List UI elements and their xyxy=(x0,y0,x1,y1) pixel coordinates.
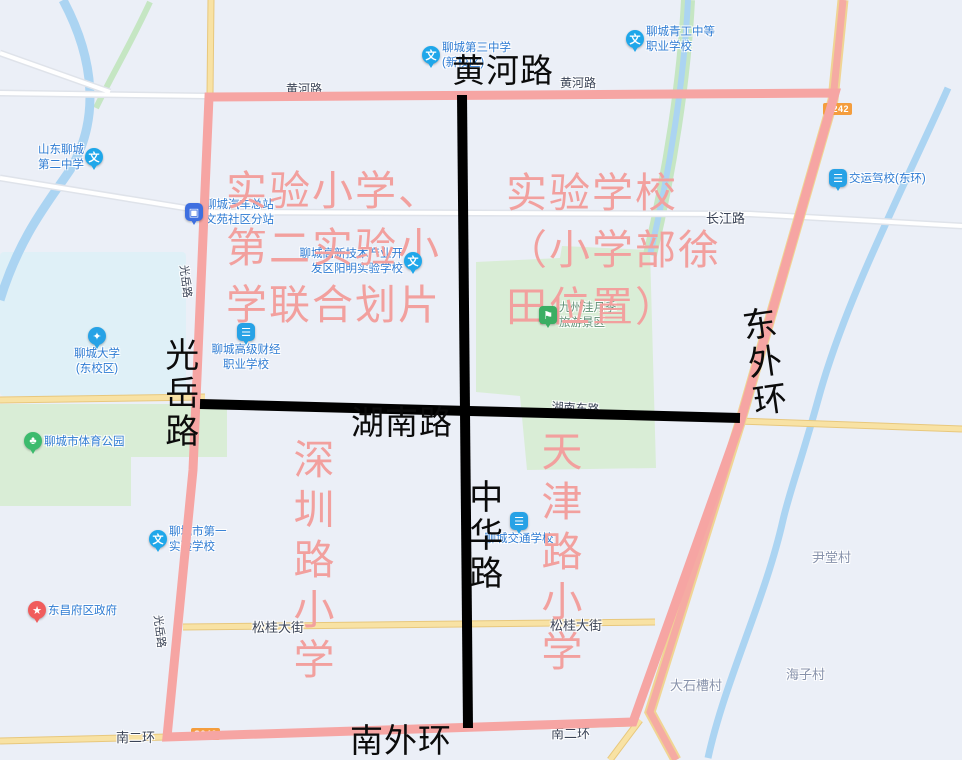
drive-icon[interactable]: ☰ xyxy=(237,323,255,341)
annotation-road-label: 南外环 xyxy=(350,724,452,759)
map-canvas[interactable]: 黄河路黄河路长江路松桂大街松桂大街南二环南二环湖南东路光岳路光岳路尹堂村海子村大… xyxy=(0,0,962,760)
annotation-road-label: 光岳路 xyxy=(160,337,196,451)
scenic-icon[interactable]: ⚑ xyxy=(539,306,557,324)
school-icon[interactable]: 文 xyxy=(404,252,422,270)
drive-icon[interactable]: ☰ xyxy=(829,169,847,187)
annotation-road-label: 中华路 xyxy=(464,479,500,593)
district-southeast: 天津路小学 xyxy=(536,430,580,680)
annotation-road-label: 东外环 xyxy=(735,305,786,423)
school-icon[interactable]: 文 xyxy=(149,530,167,548)
univ-icon[interactable]: ✦ xyxy=(88,327,106,345)
park-icon[interactable]: ♣ xyxy=(24,432,42,450)
annotation-road-label: 黄河路 xyxy=(452,54,554,89)
district-southwest: 深圳路小学 xyxy=(288,438,332,688)
school-icon[interactable]: 文 xyxy=(85,148,103,166)
district-northwest: 实验小学、第二实验小学联合划片 xyxy=(226,163,441,334)
school-icon[interactable]: 文 xyxy=(626,30,644,48)
annotation-road-label: 湖南路 xyxy=(351,406,453,441)
bus-icon[interactable]: ▣ xyxy=(185,203,203,221)
annotation-labels-layer: 黄河路湖南路南外环中华路光岳路东外环实验小学、第二实验小学联合划片实验学校（小学… xyxy=(0,0,962,760)
gov-icon[interactable]: ★ xyxy=(28,601,46,619)
school-icon[interactable]: 文 xyxy=(422,46,440,64)
drive-icon[interactable]: ☰ xyxy=(510,512,528,530)
